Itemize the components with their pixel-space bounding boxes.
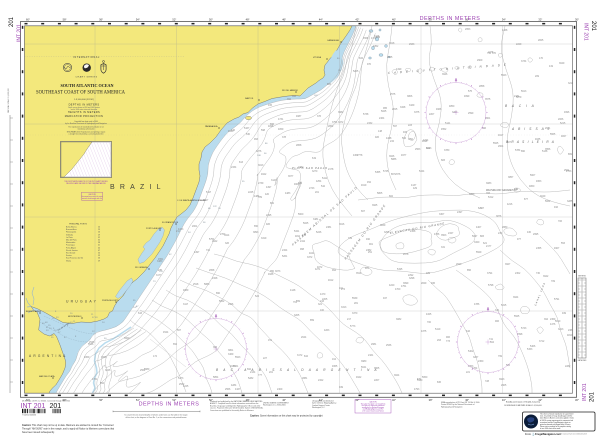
svg-text:696: 696 [270,123,275,126]
svg-text:RIO GRANDE: RIO GRANDE [135,266,148,269]
svg-text:4953: 4953 [536,180,542,183]
svg-text:5402: 5402 [468,350,474,353]
svg-text:3734: 3734 [521,60,527,63]
svg-text:3083: 3083 [486,182,492,185]
svg-text:3712: 3712 [539,340,545,343]
svg-text:2161: 2161 [368,354,374,357]
svg-text:890: 890 [521,150,526,153]
svg-text:899: 899 [568,153,573,156]
svg-text:2518: 2518 [193,283,199,286]
svg-text:4731: 4731 [278,118,284,121]
svg-text:505: 505 [506,364,511,367]
svg-text:5523: 5523 [501,74,507,77]
svg-text:3575: 3575 [485,98,491,101]
svg-text:728: 728 [485,380,490,383]
svg-text:201: 201 [590,391,596,402]
svg-text:46°: 46° [282,398,286,402]
svg-text:59: 59 [98,260,100,262]
svg-text:947: 947 [383,297,388,300]
svg-text:4148: 4148 [290,289,296,292]
svg-text:4544: 4544 [163,331,169,334]
svg-text:3980: 3980 [361,360,367,363]
svg-text:805: 805 [327,83,332,86]
svg-text:643: 643 [138,312,143,315]
svg-text:2658: 2658 [209,269,215,272]
svg-text:5341: 5341 [294,230,300,233]
svg-text:747: 747 [480,207,485,210]
svg-text:2678: 2678 [403,253,409,256]
svg-text:3298: 3298 [409,277,415,280]
svg-text:DEPTHS IN METERS: DEPTHS IN METERS [69,103,100,106]
svg-text:3013: 3013 [258,164,264,167]
svg-text:164: 164 [332,358,337,361]
svg-text:3914: 3914 [224,234,230,237]
svg-text:2623: 2623 [456,263,462,266]
svg-text:2539: 2539 [89,341,95,344]
svg-text:3082: 3082 [396,318,402,321]
svg-text:5610: 5610 [555,320,561,323]
svg-text:4568: 4568 [363,37,369,40]
svg-text:3801: 3801 [228,349,234,352]
svg-text:2360: 2360 [478,360,484,363]
svg-text:856: 856 [467,269,472,272]
svg-text:2676: 2676 [395,173,401,176]
svg-text:382: 382 [213,346,218,349]
svg-text:4700: 4700 [395,288,401,291]
svg-text:30°: 30° [575,17,579,21]
svg-text:2324: 2324 [282,249,288,252]
svg-text:567: 567 [177,329,182,332]
svg-text:3946: 3946 [442,73,448,76]
svg-text:4996: 4996 [564,111,570,114]
svg-text:378: 378 [282,136,287,139]
svg-text:ARGENTINA: ARGENTINA [29,354,67,358]
svg-text:3794: 3794 [487,272,493,275]
svg-text:933: 933 [403,131,408,134]
svg-text:890: 890 [216,292,221,295]
svg-text:3328: 3328 [400,106,406,109]
svg-text:4810: 4810 [567,334,573,337]
svg-text:394: 394 [544,318,549,321]
svg-text:3677: 3677 [288,175,294,178]
svg-text:446: 446 [231,129,236,132]
svg-text:773: 773 [446,340,451,343]
svg-text:2282: 2282 [565,365,571,368]
svg-text:700: 700 [427,321,432,324]
svg-text:2409: 2409 [277,388,283,391]
svg-text:906: 906 [495,320,500,323]
svg-text:RIO DE JANEIRO: RIO DE JANEIRO [282,89,299,92]
svg-text:859: 859 [310,319,315,322]
svg-text:5613: 5613 [521,90,527,93]
svg-text:2933: 2933 [409,43,415,46]
svg-text:4216: 4216 [507,203,513,206]
svg-text:42°: 42° [355,398,359,402]
svg-text:2207: 2207 [429,113,435,116]
svg-text:883: 883 [480,235,485,238]
svg-text:3117: 3117 [183,303,189,306]
svg-text:3616: 3616 [339,223,345,226]
svg-text:596: 596 [482,127,487,130]
svg-text:783: 783 [486,192,491,195]
svg-text:321: 321 [318,303,323,306]
svg-text:5805: 5805 [377,192,383,195]
svg-text:48°: 48° [246,17,250,21]
svg-text:INTERNATIONAL: INTERNATIONAL [73,56,100,59]
svg-text:4468: 4468 [386,137,392,140]
svg-text:3925: 3925 [372,204,378,207]
svg-text:SANTOS: SANTOS [245,97,254,100]
svg-text:SOUNDINGS IN METERS SCALE 1:: SOUNDINGS IN METERS SCALE 1:3,500,000 [504,404,542,407]
svg-text:799: 799 [498,355,503,358]
svg-text:148: 148 [378,130,383,133]
svg-text:221: 221 [466,371,471,374]
svg-text:44°: 44° [319,17,323,21]
svg-text:2995: 2995 [533,233,539,236]
svg-text:419: 419 [549,65,554,68]
svg-text:350: 350 [270,270,275,273]
svg-text:584: 584 [402,137,407,140]
svg-text:3893: 3893 [253,231,259,234]
svg-text:5886: 5886 [391,158,397,161]
svg-text:407: 407 [365,267,370,270]
svg-text:Corrections are published in t: Corrections are published in the weekly … [210,409,255,412]
svg-text:4470: 4470 [320,293,326,296]
svg-text:4254: 4254 [316,180,322,183]
svg-text:3503: 3503 [441,234,447,237]
svg-text:949: 949 [376,36,381,39]
svg-text:58°: 58° [63,17,67,21]
svg-text:Through” NM 00/00” note in the: Through” NM 00/00” note in the margin, a… [22,427,114,430]
svg-text:235: 235 [514,188,519,191]
svg-text:3140: 3140 [271,179,277,182]
svg-text:4977: 4977 [401,154,407,157]
svg-text:5153: 5153 [527,348,533,351]
svg-text:VITORIA: VITORIA [313,56,322,59]
svg-text:2653: 2653 [465,28,471,31]
svg-text:4483: 4483 [285,192,291,195]
svg-text:5411: 5411 [322,177,328,180]
svg-text:4041: 4041 [309,252,315,255]
svg-text:4966: 4966 [436,108,442,111]
svg-text:4284: 4284 [231,384,237,387]
svg-text:4263: 4263 [324,329,330,332]
svg-text:3177: 3177 [156,274,162,277]
svg-text:452: 452 [367,181,372,184]
svg-text:3699: 3699 [403,282,409,285]
svg-text:201: 201 [315,191,320,194]
svg-text:2334: 2334 [231,166,237,169]
svg-text:2322: 2322 [318,379,324,382]
svg-text:56°: 56° [99,398,103,402]
svg-text:REGION B ARE SHOWN IN THE DIAG: REGION B ARE SHOWN IN THE DIAGRAM ABOVE [66,182,106,185]
svg-text:4736: 4736 [434,233,440,236]
svg-text:731: 731 [206,249,211,252]
svg-text:5743: 5743 [521,327,527,330]
svg-text:926: 926 [266,223,271,226]
svg-text:From ⚓FrugalNavigator.com: From ⚓FrugalNavigator.com [525,432,562,436]
svg-text:2332: 2332 [367,122,373,125]
svg-text:977: 977 [517,238,522,241]
svg-text:189: 189 [426,272,431,275]
svg-text:5745: 5745 [383,170,389,173]
svg-text:3320: 3320 [474,241,480,244]
svg-text:3942: 3942 [543,275,549,278]
svg-text:739: 739 [348,237,353,240]
svg-text:2644: 2644 [301,336,307,339]
svg-text:2381: 2381 [326,226,332,229]
svg-text:5791: 5791 [554,298,560,301]
svg-text:564: 564 [490,341,495,344]
svg-text:50°: 50° [209,17,213,21]
svg-text:42°: 42° [355,17,359,21]
svg-text:370: 370 [492,52,497,55]
svg-text:524: 524 [255,295,260,298]
svg-text:4484: 4484 [254,195,260,198]
svg-text:A B I S S A L: A B I S S A L [511,127,551,131]
svg-text:5312: 5312 [488,196,494,199]
svg-text:542: 542 [321,185,326,188]
svg-text:5062: 5062 [545,200,551,203]
svg-text:2497: 2497 [457,211,463,214]
svg-text:5282: 5282 [248,377,254,380]
svg-text:5344: 5344 [419,170,425,173]
svg-text:4612: 4612 [328,279,334,282]
svg-text:430: 430 [527,231,532,234]
svg-text:40°: 40° [392,398,396,402]
svg-text:30°: 30° [575,398,579,402]
svg-text:MONTEVIDEO: MONTEVIDEO [68,316,82,318]
svg-text:881: 881 [270,202,275,205]
svg-text:4793: 4793 [414,388,420,391]
svg-text:2926: 2926 [228,303,234,306]
svg-text:575: 575 [468,90,473,93]
svg-text:994: 994 [332,269,337,272]
svg-text:5025: 5025 [381,110,387,113]
svg-text:744: 744 [487,52,492,55]
svg-text:3923: 3923 [499,378,505,381]
svg-text:2562: 2562 [140,369,146,372]
svg-text:915: 915 [268,104,273,107]
svg-text:706: 706 [558,220,563,223]
svg-text:4689: 4689 [183,289,189,292]
svg-text:METERS: METERS [578,276,586,278]
svg-text:FRATURA RIO GRANDE: FRATURA RIO GRANDE [486,189,512,192]
svg-text:172: 172 [153,355,158,358]
svg-text:4497: 4497 [194,251,200,254]
svg-text:2464: 2464 [379,117,385,120]
svg-text:2555: 2555 [387,56,393,59]
svg-text:of this chart, or the diagram: of this chart, or the diagram in Chart N… [125,416,186,419]
svg-text:3682: 3682 [338,111,344,114]
svg-text:3213: 3213 [558,328,564,331]
svg-text:5880: 5880 [204,283,210,286]
svg-text:3205: 3205 [294,314,300,317]
svg-text:3370: 3370 [352,312,358,315]
svg-text:2739: 2739 [258,182,264,185]
svg-text:802: 802 [389,195,394,198]
svg-text:5205: 5205 [353,70,359,73]
svg-text:2681: 2681 [371,343,377,346]
svg-text:Caution: Some information on t: Caution: Some information on this chart … [250,415,323,418]
svg-text:5525: 5525 [514,315,520,318]
svg-text:3285: 3285 [567,200,573,203]
svg-text:4220: 4220 [389,284,395,287]
svg-text:2455: 2455 [536,247,542,250]
svg-text:5607: 5607 [530,174,536,177]
svg-text:MERCATOR PROJECTION: MERCATOR PROJECTION [65,115,103,118]
svg-text:4786: 4786 [474,303,480,306]
svg-text:CARAVELAS: CARAVELAS [327,39,340,42]
svg-text:621: 621 [483,242,488,245]
svg-text:Southeast Coast of South Ameri: Southeast Coast of South America [506,401,541,404]
svg-text:5525: 5525 [493,142,499,145]
svg-text:553: 553 [561,242,566,245]
svg-text:5600: 5600 [298,213,304,216]
svg-text:PARANAGUA: PARANAGUA [205,125,218,128]
svg-text:530: 530 [246,133,251,136]
svg-text:650: 650 [254,225,259,228]
svg-text:5097: 5097 [472,235,478,238]
svg-text:2411: 2411 [300,240,306,243]
svg-text:906: 906 [446,336,451,339]
svg-text:4751: 4751 [401,285,407,288]
svg-text:5246: 5246 [316,231,322,234]
svg-text:4059: 4059 [278,128,284,131]
svg-text:392: 392 [287,98,292,101]
svg-text:495: 495 [431,282,436,285]
svg-text:3172: 3172 [297,354,303,357]
svg-text:3375: 3375 [414,111,420,114]
svg-text:NATURAL SCALE 1:3,500,000: NATURAL SCALE 1:3,500,000 [7,88,10,113]
svg-text:7 642014 046036: 7 642014 046036 [22,415,36,417]
svg-text:693: 693 [292,95,297,98]
svg-text:2245: 2245 [248,191,254,194]
svg-text:2743: 2743 [309,187,315,190]
svg-text:5529: 5529 [476,251,482,254]
svg-text:2825: 2825 [538,39,544,42]
svg-text:559: 559 [296,300,301,303]
svg-text:4936: 4936 [268,273,274,276]
svg-text:PLATO SAO PAULO: PLATO SAO PAULO [292,166,328,170]
svg-text:598: 598 [261,129,266,132]
svg-text:223: 223 [408,124,413,127]
svg-text:5315: 5315 [501,304,507,307]
svg-text:3876: 3876 [496,215,502,218]
svg-text:4407: 4407 [476,226,482,229]
svg-text:2868: 2868 [296,144,302,147]
svg-text:970: 970 [367,63,372,66]
svg-text:2178: 2178 [328,168,334,171]
svg-text:URUGUAY: URUGUAY [66,300,98,304]
svg-text:2001: 2001 [192,225,198,228]
svg-text:DEPTHS IN METERS: DEPTHS IN METERS [139,401,200,407]
svg-text:34°: 34° [502,17,506,21]
svg-text:2880: 2880 [502,226,508,229]
svg-text:B A C I A A B I S S A L D A A: B A C I A A B I S S A L D A A R G E N T … [216,368,379,372]
svg-text:730: 730 [536,272,541,275]
svg-text:4497: 4497 [266,186,272,189]
svg-text:3270: 3270 [312,170,318,173]
svg-text:4325: 4325 [426,313,432,316]
svg-text:INT 201: INT 201 [582,383,588,401]
svg-text:5261: 5261 [282,255,288,258]
svg-text:619: 619 [312,157,317,160]
svg-text:4619: 4619 [361,184,367,187]
svg-text:La Plata: La Plata [66,236,73,239]
svg-text:FATHOMS: FATHOMS [578,359,587,362]
svg-text:245: 245 [498,232,503,235]
svg-text:2369: 2369 [550,318,556,321]
svg-text:PRINCIPAL PORTS: PRINCIPAL PORTS [69,223,87,226]
svg-text:3073: 3073 [275,270,281,273]
svg-text:40°: 40° [392,17,396,21]
svg-text:2347: 2347 [448,232,454,235]
svg-text:BUENOS AIRES: BUENOS AIRES [26,310,42,313]
svg-text:5025: 5025 [303,222,309,225]
svg-text:3443: 3443 [426,147,432,150]
svg-text:2328: 2328 [212,277,218,280]
svg-text:38°: 38° [429,398,433,402]
svg-text:CHART SERIES: CHART SERIES [75,76,97,79]
svg-text:4225: 4225 [183,385,189,388]
svg-text:4167: 4167 [235,388,241,391]
svg-text:4942: 4942 [356,376,362,379]
svg-text:652: 652 [173,343,178,346]
svg-text:3276: 3276 [256,150,262,153]
svg-text:Vitoria: Vitoria [66,259,71,262]
svg-text:2862: 2862 [328,125,334,128]
svg-text:949: 949 [339,386,344,389]
svg-text:331: 331 [441,246,446,249]
svg-text:5650: 5650 [422,376,428,379]
svg-text:2177: 2177 [486,245,492,248]
svg-text:4724: 4724 [423,139,429,142]
svg-text:376: 376 [317,115,322,118]
svg-text:2604: 2604 [498,145,504,148]
svg-text:Buenos Aires: Buenos Aires [66,228,77,231]
svg-text:251: 251 [368,251,373,254]
svg-text:Santos: Santos [66,254,72,257]
svg-text:916: 916 [554,206,559,209]
svg-text:4617: 4617 [498,134,504,137]
svg-text:Caution: This chart may not be: Caution: This chart may not be up to dat… [22,424,114,427]
svg-text:2909: 2909 [477,59,483,62]
svg-text:B R A S I L E I R A: B R A S I L E I R A [506,140,555,144]
svg-text:INT 201: INT 201 [17,24,23,42]
svg-text:4476: 4476 [550,323,556,326]
svg-text:4860: 4860 [529,185,535,188]
svg-text:552: 552 [100,382,105,385]
svg-text:4552: 4552 [441,128,447,131]
svg-text:616: 616 [466,330,471,333]
svg-text:4375: 4375 [421,330,427,333]
svg-text:263: 263 [437,339,442,342]
svg-text:3338: 3338 [101,356,107,359]
svg-text:490: 490 [366,238,371,241]
svg-text:2495: 2495 [266,214,272,217]
svg-text:2566: 2566 [225,388,231,391]
svg-text:2302: 2302 [515,272,521,275]
svg-text:Washington, D.C. 20310-3000: Washington, D.C. 20310-3000 [263,404,286,407]
svg-text:5523: 5523 [235,356,241,359]
svg-text:Imbituba: Imbituba [66,233,73,236]
svg-text:3927: 3927 [505,263,511,266]
svg-text:5455: 5455 [375,171,381,174]
svg-text:281: 281 [354,302,359,305]
svg-text:3483: 3483 [157,260,163,263]
svg-text:720: 720 [495,309,500,312]
